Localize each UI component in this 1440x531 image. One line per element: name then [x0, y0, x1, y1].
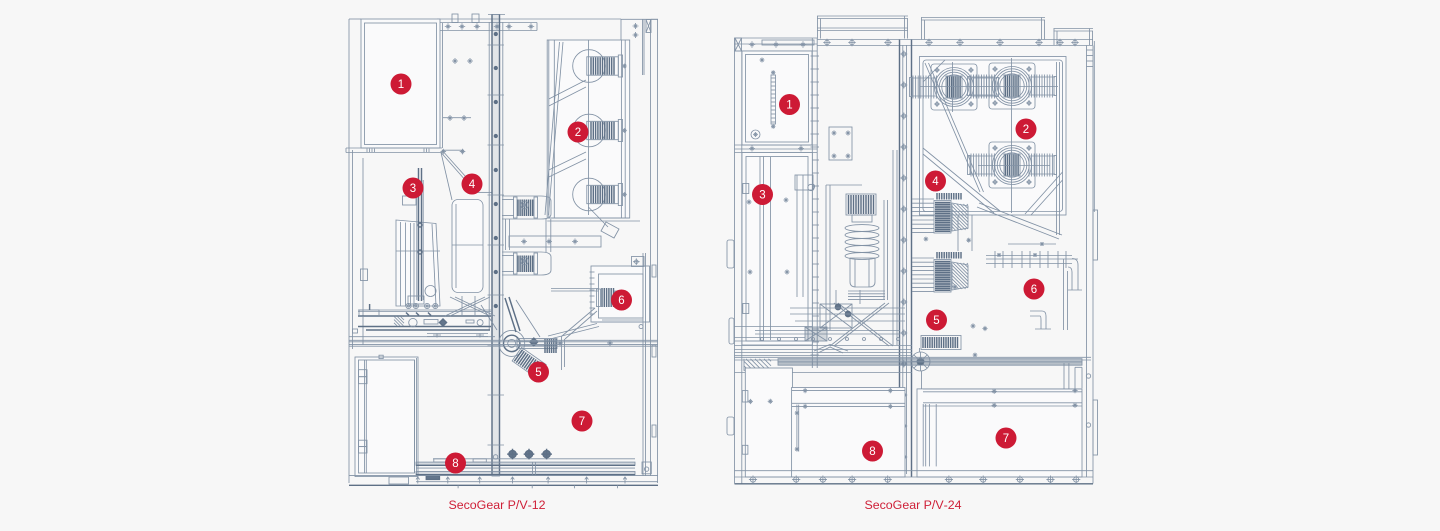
svg-text:5: 5: [535, 367, 541, 379]
svg-text:6: 6: [618, 295, 624, 307]
svg-text:1: 1: [398, 79, 404, 91]
svg-text:3: 3: [410, 183, 416, 195]
svg-text:SecoGear P/V‑24: SecoGear P/V‑24: [864, 498, 961, 512]
svg-text:6: 6: [1031, 284, 1037, 296]
svg-text:2: 2: [575, 127, 581, 139]
svg-text:8: 8: [869, 446, 875, 458]
svg-text:SecoGear P/V‑12: SecoGear P/V‑12: [448, 498, 545, 512]
svg-text:7: 7: [1003, 433, 1009, 445]
svg-text:1: 1: [786, 100, 792, 112]
svg-text:4: 4: [469, 179, 476, 191]
svg-text:3: 3: [759, 190, 765, 202]
svg-text:5: 5: [933, 315, 939, 327]
svg-text:7: 7: [579, 416, 585, 428]
svg-text:4: 4: [932, 176, 939, 188]
svg-text:2: 2: [1023, 124, 1029, 136]
svg-text:8: 8: [452, 458, 458, 470]
